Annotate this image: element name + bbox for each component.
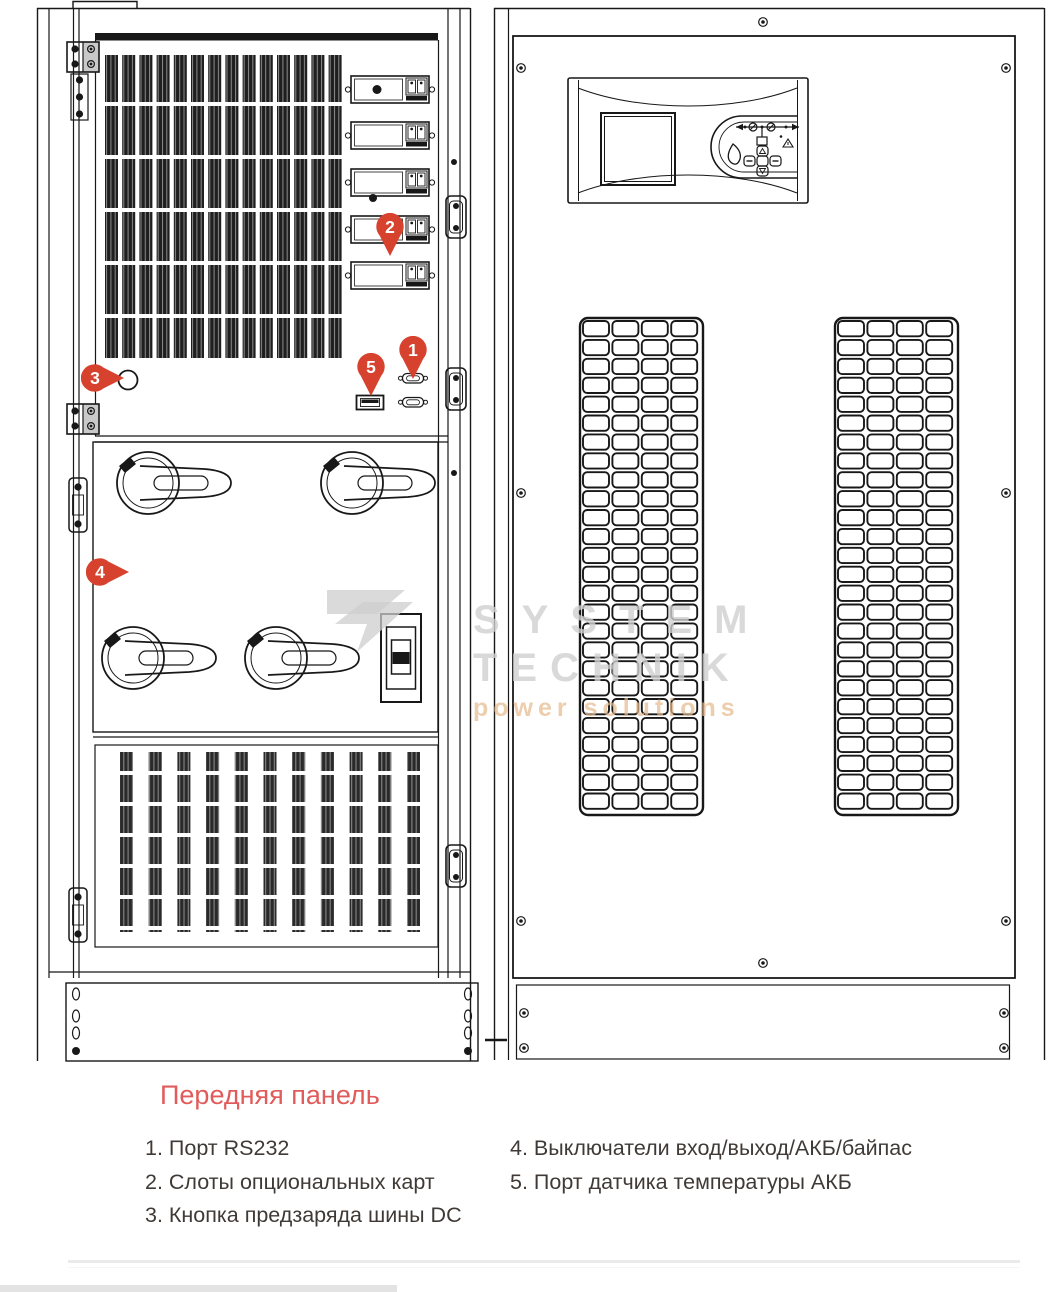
door-screw [1002, 489, 1011, 498]
navigation-dpad [744, 146, 781, 176]
callout-pin-5: 5 [356, 353, 400, 397]
footer-divider [68, 1260, 1020, 1263]
door-latch-bottom [69, 888, 87, 942]
door-screw [517, 489, 526, 498]
left-cabinet-base [66, 983, 478, 1061]
door-screw [520, 1044, 529, 1053]
legend-column-2: 4. Выключатели вход/выход/АКБ/байпас 5. … [510, 1132, 912, 1199]
right-cabinet [485, 8, 1045, 1060]
rotary-breaker-switch [102, 627, 216, 689]
door-hinge-middle [67, 404, 99, 434]
svg-text:2: 2 [385, 217, 395, 237]
legend-item-5: 5. Порт датчика температуры АКБ [510, 1166, 912, 1200]
rotary-breaker-switch [245, 627, 359, 689]
legend-item-1: 1. Порт RS232 [145, 1132, 462, 1166]
option-card-slot [345, 169, 434, 202]
section-title: Передняя панель [160, 1080, 380, 1111]
power-drop-icon [728, 144, 740, 164]
bottom-vent-slots [120, 752, 420, 932]
callout-pin-3: 3 [81, 363, 125, 407]
svg-text:1: 1 [408, 340, 418, 360]
option-card-slot [345, 122, 434, 149]
rotary-breaker-switch [321, 452, 435, 514]
footer-divider-shadow [68, 1267, 1020, 1268]
air-grille [580, 318, 703, 815]
ups-front-view-drawing [0, 0, 1051, 1070]
option-card-slot [345, 76, 434, 103]
door-screw [1002, 64, 1011, 73]
door-screw [1000, 1044, 1009, 1053]
legend-item-3: 3. Кнопка предзаряда шины DC [145, 1199, 462, 1233]
air-grille [835, 318, 958, 815]
svg-text:5: 5 [366, 357, 376, 377]
battery-temp-sensor-port [357, 396, 384, 410]
lcd-screen [601, 113, 675, 185]
page-corner-bar [0, 1285, 397, 1292]
option-card-slot [345, 262, 434, 289]
door-latch-middle [69, 478, 87, 532]
door-hinge-top [67, 42, 99, 72]
svg-text:4: 4 [95, 562, 105, 582]
rotary-breaker-switches [102, 452, 435, 689]
door-screw [759, 959, 768, 968]
callout-pin-1: 1 [398, 336, 442, 380]
callout-pin-2: 2 [375, 213, 419, 257]
legend-item-4: 4. Выключатели вход/выход/АКБ/байпас [510, 1132, 912, 1166]
door-screw [520, 1009, 529, 1018]
callout-pin-4: 4 [86, 557, 130, 601]
warning-indicator-icon [780, 135, 793, 147]
door-screws [517, 18, 1011, 1053]
display-control-panel [568, 78, 808, 203]
legend-column-1: 1. Порт RS232 2. Слоты опциональных карт… [145, 1132, 462, 1233]
heatsink-fins [105, 55, 342, 358]
left-cabinet [37, 2, 478, 1062]
legend-item-2: 2. Слоты опциональных карт [145, 1166, 462, 1200]
rotary-breaker-switch [117, 452, 231, 514]
door-screw [759, 18, 768, 27]
door-screw [1002, 917, 1011, 926]
door-screw [517, 64, 526, 73]
air-grilles [580, 318, 958, 815]
door-screw [1000, 1009, 1009, 1018]
manual-page: SYSTEM TECHNIK power solutions 1 2 3 4 5… [0, 0, 1051, 1292]
option-card-slots [345, 76, 434, 289]
right-rail-latches [446, 159, 466, 887]
right-cabinet-base [517, 985, 1010, 1059]
door-screw [517, 917, 526, 926]
svg-text:3: 3 [90, 368, 100, 388]
mcb-breaker [381, 614, 421, 702]
